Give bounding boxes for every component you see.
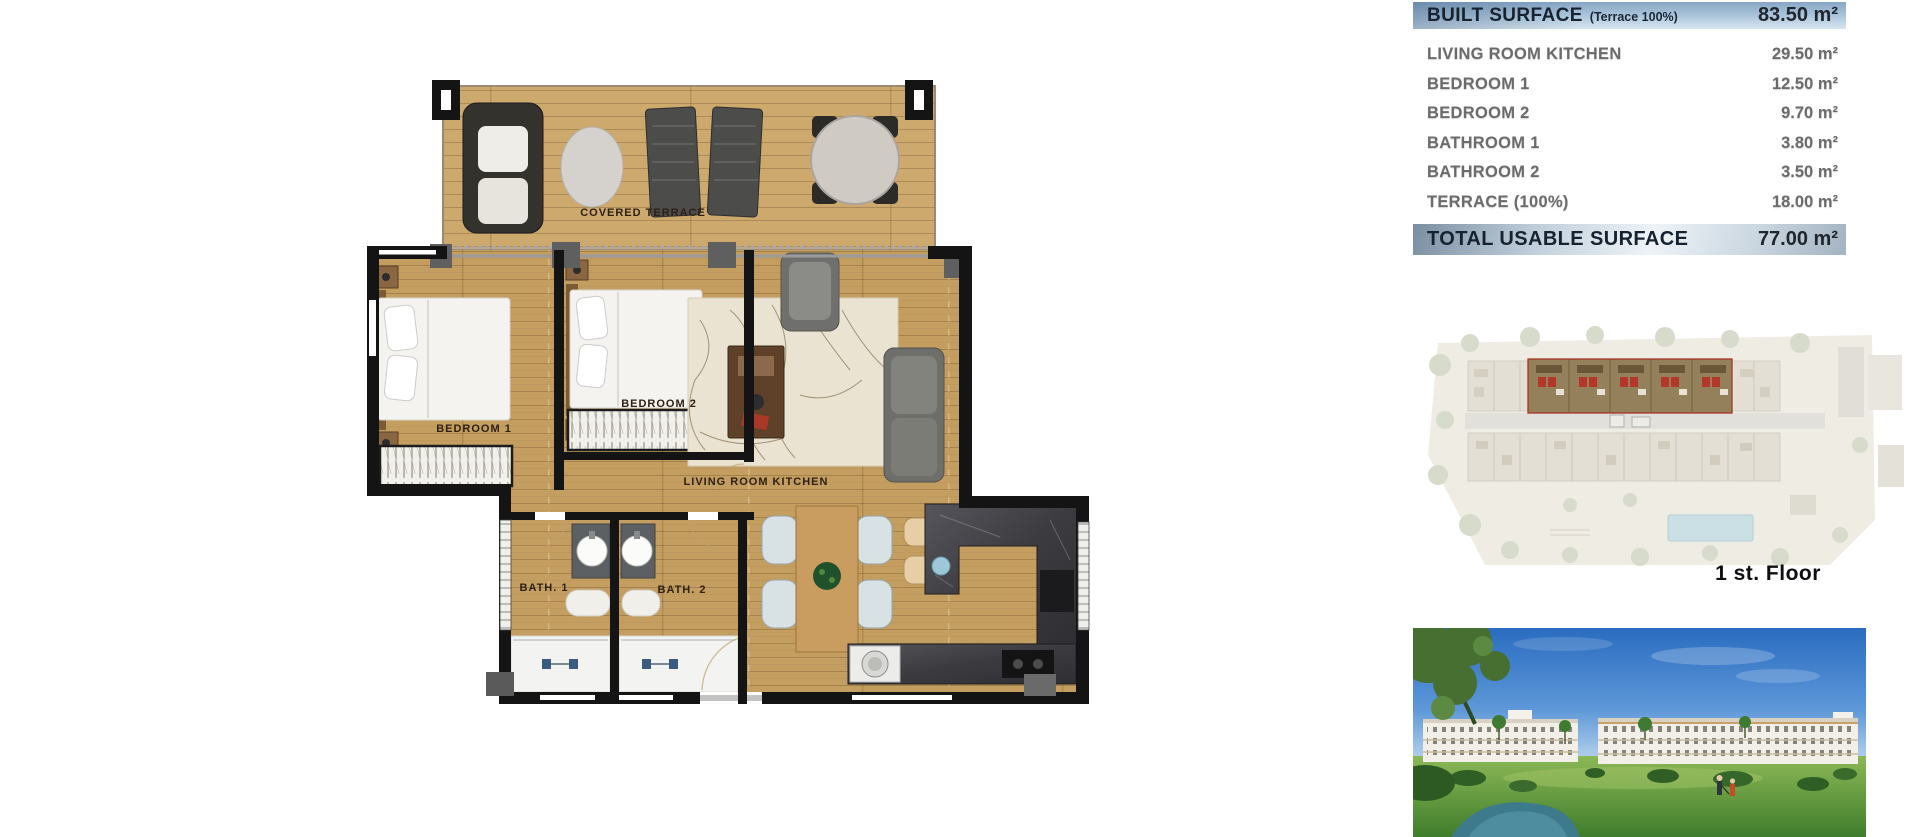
row-label: BEDROOM 1 — [1427, 75, 1530, 94]
bedroom1-furniture — [374, 266, 512, 486]
total-value: 77.00 m² — [1758, 228, 1838, 251]
built-surface-label: BUILT SURFACE — [1427, 5, 1583, 27]
built-surface-header-row: BUILT SURFACE (Terrace 100%) 83.50 m² — [1413, 2, 1846, 29]
building-row-bottom — [1468, 433, 1780, 481]
building-cluster-right — [1598, 712, 1858, 764]
label-bedroom-2: BEDROOM 2 — [621, 398, 697, 410]
table-row: BEDROOM 1 12.50 m² — [1413, 70, 1846, 100]
row-label: BATHROOM 2 — [1427, 163, 1540, 182]
exterior-render-photo — [1413, 628, 1866, 837]
terrace-note: (Terrace 100%) — [1590, 7, 1678, 24]
site-plan — [1410, 325, 1910, 595]
row-value: 18.00 m² — [1772, 193, 1838, 212]
table-row: BEDROOM 2 9.70 m² — [1413, 99, 1846, 129]
row-value: 3.80 m² — [1781, 134, 1838, 153]
label-covered-terrace: COVERED TERRACE — [580, 207, 706, 219]
table-row: LIVING ROOM KITCHEN 29.50 m² — [1413, 40, 1846, 70]
terrace-round-table — [811, 116, 899, 204]
table-row: BATHROOM 1 3.80 m² — [1413, 129, 1846, 159]
label-bath-1: BATH. 1 — [520, 582, 569, 594]
row-label: TERRACE (100%) — [1427, 193, 1569, 212]
row-value: 12.50 m² — [1772, 75, 1838, 94]
row-label: BATHROOM 1 — [1427, 134, 1540, 153]
highlighted-units — [1528, 359, 1732, 413]
floor-caption: 1 st. Floor — [1715, 562, 1821, 586]
brochure-page: COVERED TERRACE BEDROOM 1 BEDROOM 2 LIVI… — [0, 0, 1920, 837]
label-living-room-kitchen: LIVING ROOM KITCHEN — [684, 476, 829, 488]
total-usable-surface-row: TOTAL USABLE SURFACE 77.00 m² — [1413, 224, 1846, 255]
label-bath-2: BATH. 2 — [658, 584, 707, 596]
row-value: 3.50 m² — [1781, 163, 1838, 182]
total-label: TOTAL USABLE SURFACE — [1427, 228, 1688, 251]
table-row: TERRACE (100%) 18.00 m² — [1413, 188, 1846, 218]
surface-rows: LIVING ROOM KITCHEN 29.50 m² BEDROOM 1 1… — [1413, 40, 1846, 217]
row-label: BEDROOM 2 — [1427, 104, 1530, 123]
apartment-floor-plan — [360, 75, 1105, 710]
built-surface-value: 83.50 m² — [1758, 4, 1838, 27]
row-value: 29.50 m² — [1772, 45, 1838, 64]
label-bedroom-1: BEDROOM 1 — [436, 423, 512, 435]
row-label: LIVING ROOM KITCHEN — [1427, 45, 1622, 64]
table-row: BATHROOM 2 3.50 m² — [1413, 158, 1846, 188]
row-value: 9.70 m² — [1781, 104, 1838, 123]
